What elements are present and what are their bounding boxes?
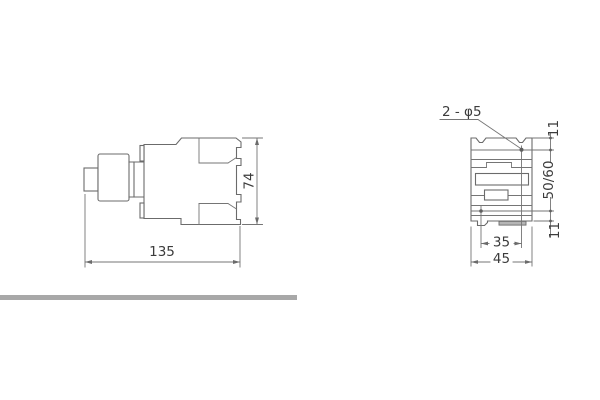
coil-block xyxy=(98,154,129,201)
marking-window xyxy=(485,190,509,200)
bottom-hole-mark xyxy=(479,209,483,213)
dim-right-column: 11 50/60 11 xyxy=(533,120,563,239)
slot-window xyxy=(476,174,529,186)
drawing-page: 135 74 xyxy=(0,0,600,400)
hole-spacing-label: 35 xyxy=(493,235,510,251)
front-view: 2 - φ5 11 50/60 11 35 xyxy=(440,104,563,267)
top-offset-label: 11 xyxy=(546,120,562,137)
bottom-latch-tab xyxy=(140,203,144,218)
dim-hole-spacing: 35 xyxy=(481,235,522,251)
side-body-outline xyxy=(144,138,241,225)
divider-bar xyxy=(0,295,297,300)
holes-note-label: 2 - φ5 xyxy=(442,104,482,120)
side-height-label: 74 xyxy=(242,172,258,189)
neck-joint xyxy=(129,162,144,197)
front-width-label: 45 xyxy=(493,251,510,267)
bottom-offset-label: 11 xyxy=(547,222,563,239)
dim-side-height: 74 xyxy=(242,138,263,225)
side-view: 135 74 xyxy=(84,138,263,267)
technical-drawing: 135 74 xyxy=(0,0,600,400)
row-spacing-label: 50/60 xyxy=(541,161,557,200)
top-latch-tab xyxy=(140,146,144,162)
terminal-block xyxy=(84,168,98,191)
side-width-label: 135 xyxy=(149,244,175,260)
